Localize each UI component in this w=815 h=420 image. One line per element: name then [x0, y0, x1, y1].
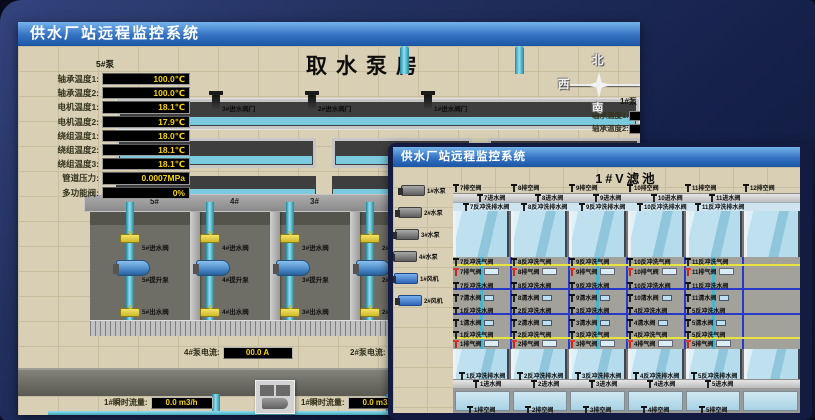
backwash-air-valve[interactable]: 3反冲洗气阀	[569, 330, 627, 339]
drain-valve[interactable]: 9排空阀	[569, 183, 627, 192]
valve-label: 3#进水阀门	[222, 103, 255, 113]
valve-icon	[685, 319, 691, 327]
sensor-rows: 轴承温度1: 100.0℃ 轴承温度2: 100.0℃ 电机温度1: 18.1℃	[26, 73, 198, 199]
valve-label: 11进水阀	[716, 193, 740, 202]
valve-label: 1反冲洗水阀	[460, 306, 493, 315]
filter-pool-window: 供水厂站远程监控系统 1#V滤池 1#水泵 2#水泵	[388, 143, 812, 420]
valve-label: 7反冲洗气阀	[460, 257, 493, 266]
valve-icon	[569, 307, 575, 315]
backwash-pump[interactable]: 1#水泵	[401, 185, 453, 196]
valve-icon	[511, 184, 517, 192]
valve-icon	[467, 406, 473, 414]
valve-label: 10反冲洗水阀	[634, 281, 671, 290]
backwash-pump[interactable]: 2#水泵	[398, 207, 453, 218]
filter-pool-titlebar[interactable]: 供水厂站远程监控系统	[393, 147, 800, 167]
pipe-stub-icon	[515, 46, 524, 74]
backwash-air-valve[interactable]: 2反冲洗气阀	[511, 330, 569, 339]
bottom-water-valve-row: 1反冲洗水阀2反冲洗水阀3反冲洗水阀4反冲洗水阀5反冲洗水阀	[453, 306, 800, 315]
backwash-drain-valve[interactable]: 8反冲洗排水阀	[521, 202, 579, 211]
exhaust-valve[interactable]: 1排气阀	[453, 339, 511, 348]
backwash-air-valve[interactable]: 5反冲洗气阀	[685, 330, 743, 339]
valve-icon	[627, 307, 633, 315]
tank-icon	[658, 340, 673, 347]
sensor-label: 轴承温度2:	[26, 87, 102, 99]
valve-icon	[743, 184, 749, 192]
valve-label: 4排气阀	[634, 339, 655, 348]
valve-label: 8进水阀	[542, 193, 563, 202]
valve-icon	[627, 258, 633, 266]
sensor-row: 管道压力: 0.0007MPa	[26, 172, 198, 184]
blower-label: 2#风机	[424, 296, 443, 305]
valve-label: 2反冲洗气阀	[518, 330, 551, 339]
exhaust-valve[interactable]: 11排气阀	[685, 267, 743, 276]
valve-label: 9反冲洗排水阀	[586, 202, 625, 211]
pump-bay[interactable]: 3#进水阀 3#提升泵 3#出水阀	[270, 212, 350, 320]
valve-label: 3进水阀	[596, 379, 617, 388]
sensor-label: 轴承温度1:	[26, 73, 102, 85]
clean-water-box-icon	[662, 295, 672, 301]
compass-west: 西	[558, 76, 570, 92]
pump-label: 3#水泵	[421, 230, 440, 239]
sensor-label: 电机温度1:	[26, 101, 102, 113]
valve-icon	[627, 331, 633, 339]
valve-icon	[695, 203, 701, 211]
exhaust-valve-icon	[453, 268, 459, 276]
outlet-valve-icon[interactable]	[360, 308, 380, 317]
valve-icon	[453, 319, 459, 327]
exhaust-valve[interactable]: 2排气阀	[511, 339, 569, 348]
clean-water-box-icon	[542, 320, 552, 326]
clean-water-box-icon	[600, 295, 610, 301]
backwash-water-valve[interactable]: 11反冲洗水阀	[685, 281, 743, 290]
valve-label: 8反冲洗排水阀	[528, 202, 567, 211]
blower[interactable]: 1#风机	[394, 273, 453, 284]
exhaust-valve-icon	[685, 340, 691, 348]
pipe-corridor: 7反冲洗气阀8反冲洗气阀9反冲洗气阀10反冲洗气阀11反冲洗气阀 7排气阀8排气…	[453, 257, 800, 349]
flow-meter-cabinet[interactable]	[255, 380, 295, 414]
flow-readout-left: 1#瞬时流量: 0.0 m3/h	[104, 397, 213, 409]
filter-grid: 7排空阀8排空阀9排空阀10排空阀11排空阀12排空阀 7进水阀8进水阀9进水阀…	[453, 183, 800, 413]
readout-value: 0.0 m3/h	[151, 397, 213, 409]
backwash-water-valve[interactable]: 5反冲洗水阀	[685, 306, 743, 315]
valve-label: 5反冲洗水阀	[692, 306, 725, 315]
sensor-value: 18.1℃	[102, 101, 190, 113]
tank-icon	[600, 268, 615, 275]
backwash-drain-valve[interactable]: 10反冲洗排水阀	[637, 202, 695, 211]
exhaust-valve[interactable]: 7排气阀	[453, 267, 511, 276]
inlet-valve[interactable]: 4进水阀	[647, 379, 705, 388]
backwash-pump[interactable]: 3#水泵	[395, 229, 453, 240]
exhaust-valve-icon	[627, 268, 633, 276]
valve-icon	[531, 380, 537, 388]
valve-icon	[463, 203, 469, 211]
inlet-valve-2[interactable]: 2#进水阀门	[308, 94, 351, 113]
top-drain-valve-row: 7排空阀8排空阀9排空阀10排空阀11排空阀12排空阀	[453, 183, 800, 192]
clean-water-box-icon	[658, 320, 668, 326]
inlet-valve-label: 4#进水阀	[222, 242, 249, 252]
clean-water-valve[interactable]: 3清水阀	[569, 318, 627, 327]
inlet-valve-3[interactable]: 3#进水阀门	[212, 94, 255, 113]
exhaust-valve-icon	[569, 268, 575, 276]
backwash-pump[interactable]: 4#水泵	[393, 251, 453, 262]
valve-label: 7反冲洗水阀	[460, 281, 493, 290]
valve-label: 3排空阀	[590, 405, 611, 413]
sensor-label: 多功能阀:	[26, 187, 102, 199]
inlet-valve-1[interactable]: 1#进水阀门	[424, 94, 467, 113]
exhaust-valve[interactable]: 4排气阀	[627, 339, 685, 348]
top-backwash-drain-row: 7反冲洗排水阀8反冲洗排水阀9反冲洗排水阀10反冲洗排水阀11反冲洗排水阀	[453, 202, 800, 211]
backwash-water-valve[interactable]: 2反冲洗水阀	[511, 306, 569, 315]
valve-label: 4反冲洗水阀	[634, 306, 667, 315]
backwash-air-valve[interactable]: 11反冲洗气阀	[685, 257, 743, 266]
valve-icon	[521, 203, 527, 211]
pump-label: 4#水泵	[419, 252, 438, 261]
backwash-drain-valve[interactable]: 11反冲洗排水阀	[695, 202, 753, 211]
drain-valve[interactable]: 7排空阀	[453, 183, 511, 192]
sensor-row: 绕组温度1: 18.0℃	[26, 130, 198, 142]
valve-icon	[651, 194, 657, 202]
desktop: 供水厂站远程监控系统 取水泵房 3#进水阀门 2#进水阀门 1#进水阀门	[0, 0, 815, 420]
sensor-row: 绕组温度2: 18.1℃	[26, 144, 198, 156]
inlet-valve[interactable]: 3进水阀	[589, 379, 647, 388]
drain-valve[interactable]: 10排空阀	[627, 183, 685, 192]
machine-column: 1#水泵 2#水泵 3#水泵	[393, 185, 453, 413]
outlet-valve-icon[interactable]	[120, 308, 140, 317]
valve-label: 9反冲洗水阀	[576, 281, 609, 290]
filter-cell	[511, 211, 567, 257]
outlet-valve-label: 3#出水阀	[302, 306, 329, 316]
valve-label: 10排气阀	[634, 267, 659, 276]
clean-water-valve[interactable]: 1清水阀	[453, 318, 511, 327]
valve-label: 9反冲洗气阀	[576, 257, 609, 266]
valve-label: 4反冲洗气阀	[634, 330, 667, 339]
sensor-value: 17.9℃	[102, 116, 190, 128]
inlet-valve[interactable]: 9进水阀	[593, 193, 651, 202]
valve-icon	[569, 319, 575, 327]
pump-label: 1#水泵	[427, 186, 446, 195]
valve-icon	[641, 406, 647, 414]
sensor-label: 绕组温度3:	[26, 158, 102, 170]
valve-label: 1反冲洗气阀	[460, 330, 493, 339]
blowers: 1#风机 2#风机	[393, 273, 453, 306]
valve-icon	[473, 380, 479, 388]
clean-water-valve[interactable]: 7清水阀	[453, 293, 511, 302]
valve-label: 1#进水阀门	[434, 103, 467, 113]
inlet-valve[interactable]: 2进水阀	[531, 379, 589, 388]
backwash-water-valve[interactable]: 7反冲洗水阀	[453, 281, 511, 290]
sensor-value: 18.1℃	[102, 158, 190, 170]
backwash-water-valve[interactable]: 3反冲洗水阀	[569, 306, 627, 315]
backwash-water-valve[interactable]: 4反冲洗水阀	[627, 306, 685, 315]
pump-label: 4#提升泵	[222, 274, 249, 284]
valve-icon	[705, 380, 711, 388]
inlet-valve[interactable]: 5进水阀	[705, 379, 763, 388]
valve-icon	[709, 194, 715, 202]
valve-icon	[535, 194, 541, 202]
valve-label: 1进水阀	[480, 379, 501, 388]
outlet-valve-label: 5#出水阀	[142, 306, 169, 316]
clean-water-valve[interactable]: 2清水阀	[511, 318, 569, 327]
sensor-row: 多功能阀: 0%	[26, 187, 198, 199]
drain-valve[interactable]: 8排空阀	[511, 183, 569, 192]
drain-valve[interactable]: 1排空阀	[467, 405, 525, 413]
exhaust-valve[interactable]: 8排气阀	[511, 267, 569, 276]
pump-label: 5#提升泵	[142, 274, 169, 284]
exhaust-valve-icon	[569, 340, 575, 348]
drain-valve[interactable]: 11排空阀	[685, 183, 743, 192]
valve-icon	[699, 406, 705, 414]
clean-water-valve[interactable]: 8清水阀	[511, 293, 569, 302]
valve-icon	[511, 294, 517, 302]
window-title: 供水厂站远程监控系统	[30, 25, 200, 42]
clean-water-valve[interactable]: 9清水阀	[569, 293, 627, 302]
sensor-panel-header: 1#泵	[620, 96, 640, 107]
exhaust-valve[interactable]: 3排气阀	[569, 339, 627, 348]
valve-label: 1清水阀	[460, 318, 481, 327]
valve-icon	[627, 282, 633, 290]
readout-label: 2#泵电流:	[350, 347, 386, 358]
bottom-inlet-valve-row: 1进水阀2进水阀3进水阀4进水阀5进水阀	[453, 379, 800, 388]
exhaust-valve-icon	[685, 268, 691, 276]
sensor-row: 电机温度2: 17.9℃	[26, 116, 198, 128]
valve-icon	[569, 282, 575, 290]
backwash-air-valve[interactable]: 4反冲洗气阀	[627, 330, 685, 339]
valve-label: 5排空阀	[706, 405, 727, 413]
backwash-air-valve[interactable]: 10反冲洗气阀	[627, 257, 685, 266]
clean-water-box-icon	[484, 320, 494, 326]
sensor-label: 电机温度2:	[26, 116, 102, 128]
clean-water-valve[interactable]: 5清水阀	[685, 318, 743, 327]
valve-icon	[685, 307, 691, 315]
bottom-drain-valve-row: 1排空阀2排空阀3排空阀4排空阀5排空阀	[453, 405, 800, 413]
backwash-pumps: 1#水泵 2#水泵 3#水泵	[393, 185, 453, 262]
drain-valve[interactable]: 3排空阀	[583, 405, 641, 413]
valve-icon	[637, 203, 643, 211]
sensor-label: 管道压力:	[26, 172, 102, 184]
sensor-value	[629, 124, 640, 134]
top-air-valve-row: 7反冲洗气阀8反冲洗气阀9反冲洗气阀10反冲洗气阀11反冲洗气阀	[453, 257, 800, 266]
valve-label: 11反冲洗气阀	[692, 257, 728, 266]
pump-house-titlebar[interactable]: 供水厂站远程监控系统	[18, 22, 640, 46]
top-exhaust-valve-row: 7排气阀8排气阀9排气阀10排气阀11排气阀	[453, 267, 800, 276]
valve-icon	[579, 203, 585, 211]
exhaust-valve-icon	[511, 340, 517, 348]
valve-label: 5进水阀	[712, 379, 733, 388]
valve-label: 5反冲洗气阀	[692, 330, 725, 339]
readout-value: 00.0 A	[223, 347, 293, 359]
sensor-label: 轴承温度2:	[592, 123, 629, 134]
drain-valve[interactable]: 2排空阀	[525, 405, 583, 413]
inlet-valve-icon[interactable]	[360, 234, 380, 243]
clean-water-valve[interactable]: 10清水阀	[627, 293, 685, 302]
sensor-row: 轴承温度2:	[592, 123, 640, 134]
valve-icon	[583, 406, 589, 414]
exhaust-valve[interactable]: 9排气阀	[569, 267, 627, 276]
valve-icon	[627, 319, 633, 327]
valve-icon	[685, 294, 691, 302]
pump-bay[interactable]: 5#进水阀 5#提升泵 5#出水阀	[110, 212, 190, 320]
inlet-valve[interactable]: 7进水阀	[477, 193, 535, 202]
backwash-drain-valve[interactable]: 9反冲洗排水阀	[579, 202, 637, 211]
valve-label: 11反冲洗排水阀	[702, 202, 744, 211]
valve-icon	[569, 258, 575, 266]
filter-pool-scene: 1#V滤池 1#水泵 2#水泵	[393, 167, 800, 413]
valve-icon	[569, 294, 575, 302]
valve-icon	[627, 184, 633, 192]
valve-label: 4清水阀	[634, 318, 655, 327]
pipe-stub-icon	[400, 46, 409, 74]
sensor-row: 轴承温度1:	[592, 110, 640, 121]
inlet-valve[interactable]: 10进水阀	[651, 193, 709, 202]
blower[interactable]: 2#风机	[398, 295, 453, 306]
valve-label: 9排气阀	[576, 267, 597, 276]
backwash-water-valve[interactable]: 1反冲洗水阀	[453, 306, 511, 315]
valve-icon	[212, 94, 220, 109]
valve-label: 11排气阀	[692, 267, 716, 276]
backwash-water-valve[interactable]: 9反冲洗水阀	[569, 281, 627, 290]
top-clean-valve-row: 7清水阀8清水阀9清水阀10清水阀11清水阀	[453, 293, 800, 302]
valve-label: 2排空阀	[532, 405, 553, 413]
valve-label: 10清水阀	[634, 293, 659, 302]
sensor-value: 18.0℃	[102, 130, 190, 142]
tank-icon	[542, 268, 557, 275]
valve-label: 4排空阀	[648, 405, 669, 413]
backwash-air-valve[interactable]: 7反冲洗气阀	[453, 257, 511, 266]
clean-water-valve[interactable]: 11清水阀	[685, 293, 743, 302]
current-readout-4: 4#泵电流: 00.0 A	[184, 347, 293, 359]
bay-header: 3#	[310, 197, 390, 206]
tank-icon	[719, 268, 734, 275]
clean-water-valve[interactable]: 4清水阀	[627, 318, 685, 327]
outlet-valve-icon[interactable]	[200, 308, 220, 317]
drain-valve[interactable]: 5排空阀	[699, 405, 757, 413]
valve-label: 11排空阀	[692, 183, 716, 192]
compass-north: 北	[592, 52, 604, 68]
readout-label: 4#泵电流:	[184, 347, 220, 358]
exhaust-valve-icon	[511, 268, 517, 276]
pump-glyph-icon	[262, 398, 288, 409]
clean-water-box-icon	[600, 320, 610, 326]
valve-label: 7反冲洗排水阀	[470, 202, 509, 211]
top-inlet-valve-row: 7进水阀8进水阀9进水阀10进水阀11进水阀	[453, 193, 800, 202]
valve-label: 11清水阀	[692, 293, 716, 302]
backwash-air-valve[interactable]: 8反冲洗气阀	[511, 257, 569, 266]
valve-label: 7排空阀	[460, 183, 481, 192]
valve-label: 5排气阀	[692, 339, 713, 348]
pump-icon	[395, 229, 419, 240]
valve-icon	[511, 282, 517, 290]
inlet-valve-icon[interactable]	[280, 234, 300, 243]
pump-icon	[393, 251, 417, 262]
readout-label: 1#瞬时流量:	[301, 397, 345, 408]
valve-label: 10进水阀	[658, 193, 683, 202]
valve-label: 2反冲洗水阀	[518, 306, 551, 315]
tank-icon	[600, 340, 615, 347]
sensor-value: 0%	[102, 187, 190, 199]
tank-icon	[716, 340, 731, 347]
inlet-valve-icon[interactable]	[120, 234, 140, 243]
valve-icon	[511, 258, 517, 266]
valve-label: 2进水阀	[538, 379, 559, 388]
bottom-air-valve-row: 1反冲洗气阀2反冲洗气阀3反冲洗气阀4反冲洗气阀5反冲洗气阀	[453, 330, 800, 339]
backwash-water-valve[interactable]: 8反冲洗水阀	[511, 281, 569, 290]
valve-label: 3清水阀	[576, 318, 597, 327]
valve-icon	[593, 194, 599, 202]
valve-icon	[685, 258, 691, 266]
filter-cell	[569, 211, 625, 257]
valve-label: 3反冲洗气阀	[576, 330, 609, 339]
readout-label: 1#瞬时流量:	[104, 397, 148, 408]
valve-label: 4进水阀	[654, 379, 675, 388]
valve-label: 11反冲洗水阀	[692, 281, 728, 290]
inlet-valve[interactable]: 11进水阀	[709, 193, 767, 202]
right-sensor-panel-partial: 1#泵 轴承温度1: 轴承温度2:	[592, 96, 640, 136]
valve-icon	[685, 331, 691, 339]
valve-icon	[569, 184, 575, 192]
filter-cell	[686, 211, 742, 257]
inlet-valve[interactable]: 1进水阀	[473, 379, 531, 388]
valve-icon	[685, 184, 691, 192]
valve-label: 8清水阀	[518, 293, 539, 302]
bay-header: 4#	[230, 197, 310, 206]
valve-label: 7排气阀	[460, 267, 481, 276]
valve-label: 8排空阀	[518, 183, 539, 192]
outlet-valve-icon[interactable]	[280, 308, 300, 317]
valve-icon	[453, 282, 459, 290]
valve-label: 10反冲洗气阀	[634, 257, 671, 266]
exhaust-valve[interactable]: 5排气阀	[685, 339, 743, 348]
inlet-valve-icon[interactable]	[200, 234, 220, 243]
sensor-row: 轴承温度1: 100.0℃	[26, 73, 198, 85]
valve-label: 5清水阀	[692, 318, 713, 327]
clean-water-box-icon	[542, 295, 552, 301]
valve-label: 9排空阀	[576, 183, 597, 192]
exhaust-valve-icon	[453, 340, 459, 348]
top-water-valve-row: 7反冲洗水阀8反冲洗水阀9反冲洗水阀10反冲洗水阀11反冲洗水阀	[453, 281, 800, 290]
inlet-valve-label: 3#进水阀	[302, 242, 329, 252]
pump-label: 2#水泵	[424, 208, 443, 217]
exhaust-valve[interactable]: 10排气阀	[627, 267, 685, 276]
backwash-water-valve[interactable]: 10反冲洗水阀	[627, 281, 685, 290]
drain-valve[interactable]: 4排空阀	[641, 405, 699, 413]
backwash-air-valve[interactable]: 1反冲洗气阀	[453, 330, 511, 339]
valve-icon	[685, 282, 691, 290]
sensor-row: 轴承温度2: 100.0℃	[26, 87, 198, 99]
valve-label: 12排空阀	[750, 183, 775, 192]
valve-label: 3排气阀	[576, 339, 597, 348]
valve-label: 2#进水阀门	[318, 103, 351, 113]
sensor-panel: 5#泵 轴承温度1: 100.0℃ 轴承温度2: 100.0℃	[26, 58, 198, 201]
valve-icon	[477, 194, 483, 202]
drain-valve[interactable]: 12排空阀	[743, 183, 800, 192]
backwash-air-valve[interactable]: 9反冲洗气阀	[569, 257, 627, 266]
valve-icon	[627, 294, 633, 302]
clean-water-box-icon	[716, 320, 726, 326]
blower-icon	[394, 273, 418, 284]
valve-icon	[569, 331, 575, 339]
inlet-valve-label: 5#进水阀	[142, 242, 169, 252]
sensor-label: 轴承温度1:	[592, 110, 629, 121]
valve-label: 1排气阀	[460, 339, 481, 348]
valve-icon	[589, 380, 595, 388]
pump-bay[interactable]: 4#进水阀 4#提升泵 4#出水阀	[190, 212, 270, 320]
inlet-valve[interactable]: 8进水阀	[535, 193, 593, 202]
backwash-drain-valve[interactable]: 7反冲洗排水阀	[463, 202, 521, 211]
sensor-value: 0.0007MPa	[102, 172, 190, 184]
valve-label: 7进水阀	[484, 193, 505, 202]
valve-icon	[308, 94, 316, 109]
clean-water-box-icon	[719, 295, 729, 301]
